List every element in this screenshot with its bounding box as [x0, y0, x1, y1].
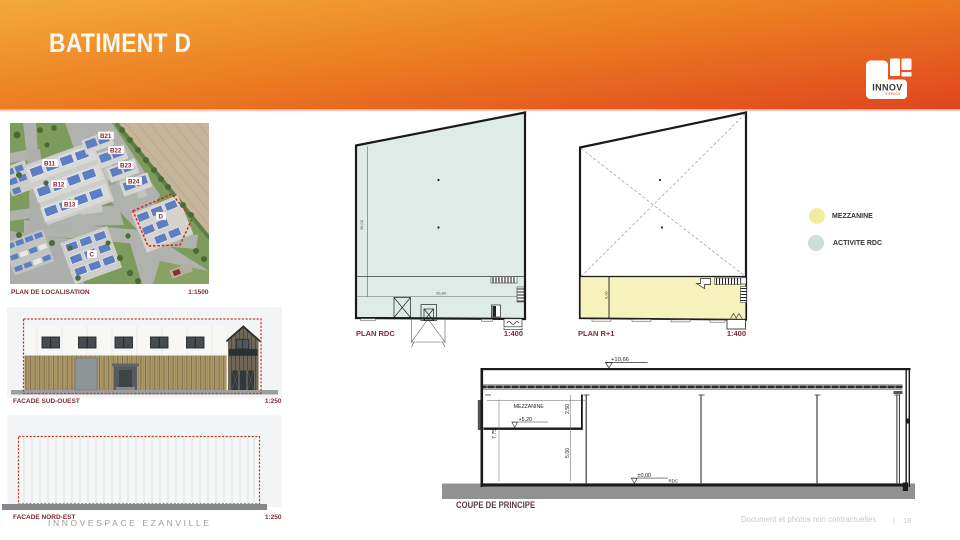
- svg-text:B21: B21: [100, 133, 112, 140]
- svg-text:+10,66: +10,66: [611, 357, 629, 363]
- svg-text:2,50: 2,50: [565, 404, 571, 414]
- svg-text:36,89: 36,89: [436, 291, 447, 296]
- svg-text:7,75: 7,75: [492, 429, 498, 439]
- svg-text:B12: B12: [53, 182, 65, 189]
- svg-text:+5,20: +5,20: [519, 417, 533, 423]
- svg-text:MEZZANINE: MEZZANINE: [514, 404, 545, 410]
- svg-text:B23: B23: [120, 163, 132, 170]
- svg-text:C: C: [90, 252, 95, 259]
- svg-text:B13: B13: [64, 202, 76, 209]
- svg-text:B24: B24: [128, 179, 140, 186]
- svg-text:B22: B22: [110, 148, 122, 155]
- svg-text:D: D: [159, 214, 164, 221]
- svg-text:B11: B11: [44, 161, 56, 168]
- svg-text:RDC: RDC: [669, 479, 679, 484]
- svg-text:ESPACE: ESPACE: [886, 92, 902, 96]
- svg-text:5,00: 5,00: [565, 448, 571, 458]
- svg-text:9,00: 9,00: [604, 290, 609, 299]
- svg-text:38,00: 38,00: [359, 219, 364, 230]
- svg-text:±0,00: ±0,00: [638, 473, 651, 479]
- svg-text:INNOV: INNOV: [872, 82, 903, 92]
